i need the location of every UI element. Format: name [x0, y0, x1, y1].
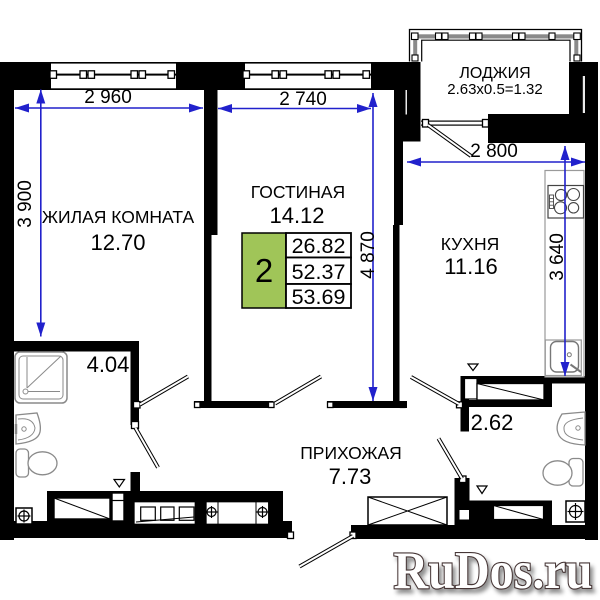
svg-text:ПРИХОЖАЯ: ПРИХОЖАЯ [300, 443, 402, 463]
svg-text:2 740: 2 740 [279, 89, 327, 110]
svg-text:ГОСТИНАЯ: ГОСТИНАЯ [251, 182, 345, 202]
svg-text:2 800: 2 800 [470, 141, 518, 162]
svg-text:КУХНЯ: КУХНЯ [441, 234, 499, 254]
svg-text:2 960: 2 960 [84, 87, 132, 108]
svg-text:53.69: 53.69 [292, 285, 346, 309]
svg-text:RuDos.ru: RuDos.ru [394, 542, 593, 600]
svg-text:52.37: 52.37 [292, 260, 346, 284]
svg-text:7.73: 7.73 [329, 464, 372, 489]
svg-text:3 640: 3 640 [547, 233, 568, 281]
svg-text:4 870: 4 870 [358, 231, 379, 279]
svg-text:3 900: 3 900 [15, 180, 36, 228]
svg-text:4.04: 4.04 [87, 352, 130, 377]
svg-text:2.63x0.5=1.32: 2.63x0.5=1.32 [447, 81, 543, 98]
svg-text:11.16: 11.16 [444, 254, 497, 279]
svg-text:2: 2 [255, 252, 273, 289]
svg-text:ЛОДЖИЯ: ЛОДЖИЯ [459, 65, 530, 82]
svg-text:14.12: 14.12 [269, 203, 324, 228]
svg-text:26.82: 26.82 [292, 234, 346, 258]
svg-text:12.70: 12.70 [90, 230, 145, 255]
svg-text:ЖИЛАЯ КОМНАТА: ЖИЛАЯ КОМНАТА [42, 207, 195, 227]
svg-text:2.62: 2.62 [471, 410, 514, 435]
